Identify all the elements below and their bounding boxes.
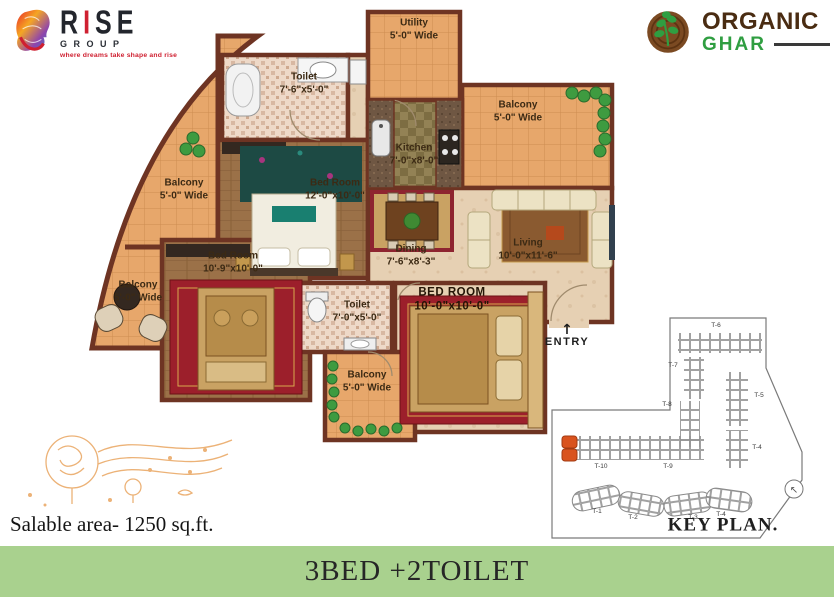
room-label-bedroom-bottom: BED ROOM10'-0"x10'-0" (414, 286, 489, 315)
key-plan-title: KEY PLAN. (668, 516, 779, 535)
svg-text:↖: ↖ (790, 485, 798, 496)
flourish-decoration (28, 436, 232, 507)
entry-marker: ↑ ENTRY (545, 325, 589, 349)
room-label-toilet-bottom: Toilet7'-0"x5'-0" (333, 300, 382, 325)
room-label-kitchen: Kitchen7'-0"x8'-0" (390, 143, 439, 168)
room-label-balcony-ll: Balcony5'-0" Wide (114, 280, 162, 305)
rise-head-graphic (12, 6, 54, 56)
tower-label-t6: T-6 (711, 323, 720, 330)
organic-label: ORGANIC (702, 10, 830, 34)
logo-underline (774, 43, 830, 46)
room-label-balcony-tr: Balcony5'-0" Wide (494, 100, 542, 125)
organic-ghar-logo: ORGANIC GHAR (642, 6, 830, 58)
room-label-balcony-ul: Balcony5'-0" Wide (160, 178, 208, 203)
room-label-living: Living10'-0"x11'-6" (498, 238, 557, 263)
rise-wordmark: RISE (60, 8, 177, 38)
tower-t5-strip (726, 372, 748, 426)
entry-arrow-icon: ↑ (545, 325, 589, 335)
tower-label-t5: T-5 (754, 393, 763, 400)
room-label-bedroom-top: Bed Room12'-0"x10'-0" (305, 178, 365, 203)
flyer-page: ↖ (0, 0, 834, 601)
rise-group-logo: RISE GROUP where dreams take shape and r… (12, 6, 177, 60)
room-label-bedroom-left: Bed Room10'-9"x10'-0" (203, 251, 263, 276)
rise-tagline: where dreams take shape and rise (60, 52, 177, 60)
salable-area-text: Salable area- 1250 sq.ft. (10, 511, 214, 537)
organic-ghar-emblem (642, 6, 694, 58)
tower-t2-strip (617, 490, 666, 518)
banner-title: 3BED +2TOILET (305, 555, 530, 587)
room-label-toilet-top: Toilet7'-6"x5'-0" (280, 72, 329, 97)
tower-label-t4-right: T-4 (752, 445, 761, 452)
room-label-balcony-bottom: Balcony5'-0" Wide (343, 370, 391, 395)
dining-furniture (372, 192, 452, 250)
tower-t10-t9-strip (566, 436, 704, 460)
tower-t7-strip (684, 357, 704, 399)
highlighted-unit (562, 449, 577, 461)
highlighted-unit (562, 436, 577, 448)
banner: 3BED +2TOILET (0, 546, 834, 597)
room-label-dining: Dining7'-6"x8'-3" (387, 244, 436, 269)
tower-label-t7: T-7 (668, 363, 677, 370)
ghar-label: GHAR (702, 35, 766, 55)
tower-label-t8: T-8 (662, 402, 671, 409)
tower-t4b-strip (705, 487, 753, 513)
entry-label: ENTRY (545, 335, 589, 349)
tower-label-t10: T-10 (594, 464, 607, 471)
room-label-utility: Utility5'-0" Wide (390, 18, 438, 43)
tower-t4-strip (726, 430, 748, 468)
tower-label-t9: T-9 (663, 464, 672, 471)
tower-label-t2: T-2 (628, 515, 637, 522)
key-plan: ↖ (552, 318, 803, 538)
living-window (609, 205, 615, 260)
tower-t6-strip (678, 333, 762, 353)
tower-label-t1: T-1 (592, 509, 601, 516)
